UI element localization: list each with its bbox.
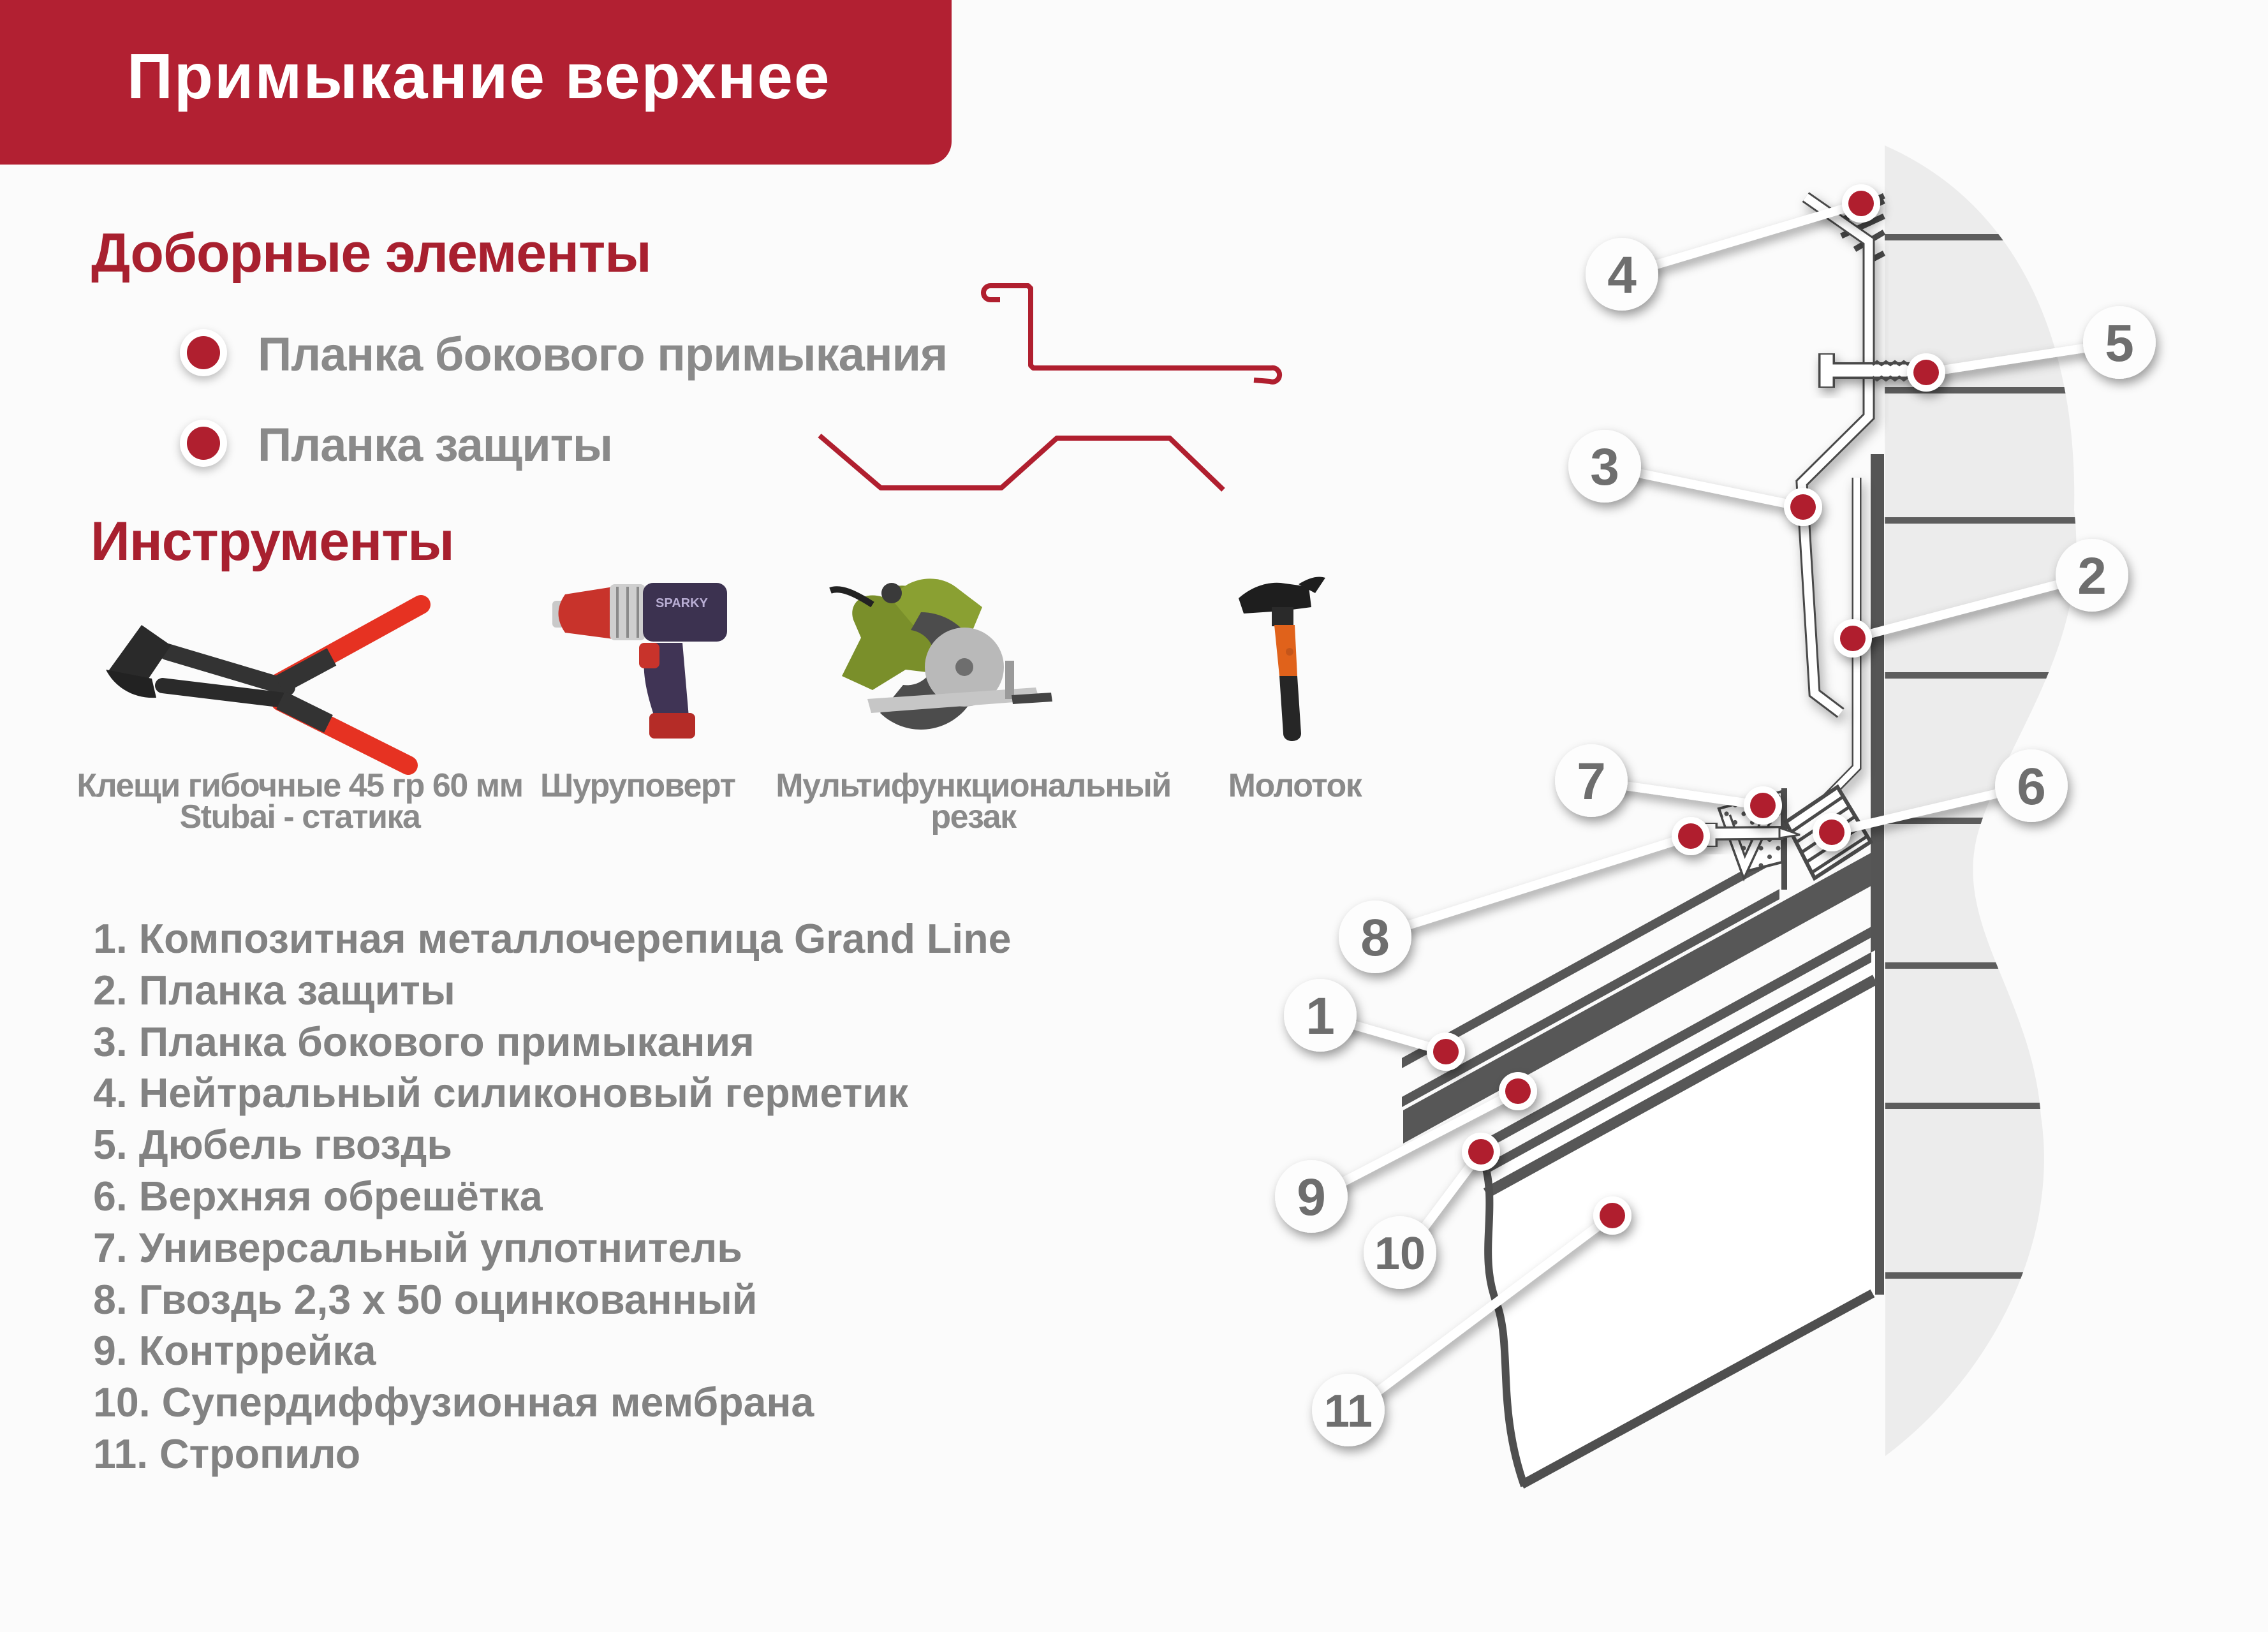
svg-text:2: 2 <box>2077 547 2107 605</box>
svg-text:6: 6 <box>2017 758 2046 816</box>
svg-text:5: 5 <box>2105 314 2134 372</box>
svg-text:10: 10 <box>1374 1228 1425 1279</box>
svg-text:11: 11 <box>1324 1386 1373 1437</box>
svg-text:7: 7 <box>1577 753 1606 811</box>
svg-text:SPARKY: SPARKY <box>656 596 709 610</box>
svg-text:3: 3 <box>1590 438 1619 496</box>
svg-text:4: 4 <box>1607 246 1637 304</box>
svg-text:1: 1 <box>1306 987 1335 1045</box>
svg-text:8: 8 <box>1360 909 1390 967</box>
svg-text:9: 9 <box>1297 1168 1326 1226</box>
